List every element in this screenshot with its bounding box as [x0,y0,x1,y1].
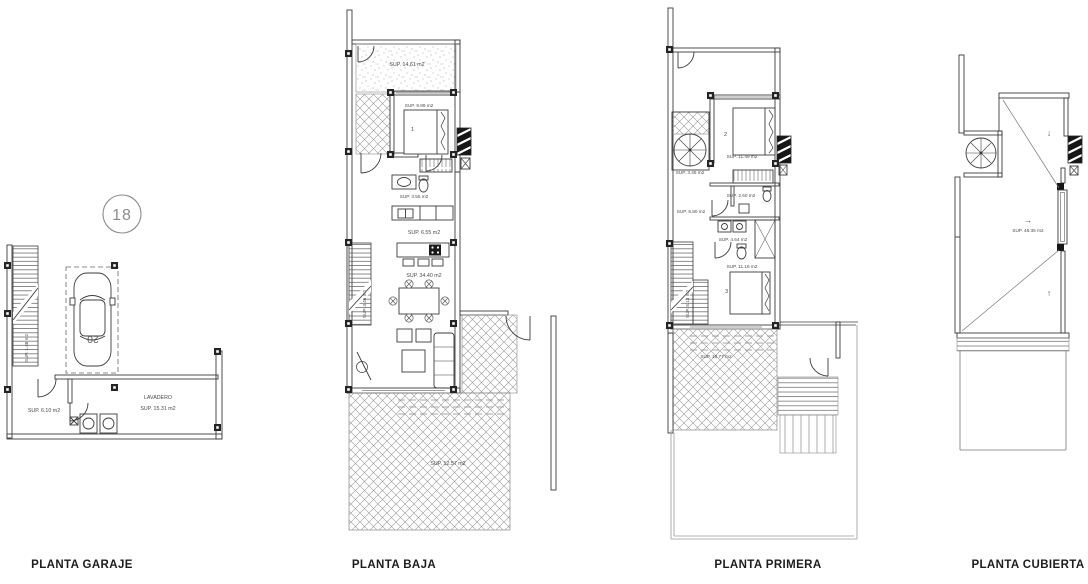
rear-terrace: SUP. 12.57 m2 [349,393,510,530]
car-number: 20 [87,333,99,345]
first-floor-plan-drawing: 2 SUP. 11.49 m2 SUP. 3.45 m2 [650,0,880,545]
spiral-stairs: SUP. 3.45 m2 [672,112,709,175]
garage-plan-drawing: 18 SUP. 1.48 m2 20 [0,180,235,465]
living-furniture [397,329,454,388]
title-planta-baja: PLANTA BAJA [319,559,469,571]
side-deck-hatch [356,94,390,154]
title-planta-primera: PLANTA PRIMERA [693,559,843,571]
ground-stairs: SUP. 3.46 m2 [349,243,371,325]
first-stairs-area-label: SUP. 5.13 m2 [685,290,690,318]
patio-area-label: SUP. 14.61 m2 [389,62,424,68]
bedroom-1-number: 1 [411,127,414,133]
roof-plan-drawing: ↓ → SUP. 46.35 m2 ↑ [930,40,1088,465]
laundry-area-label: SUP. 15.31 m2 [140,406,175,412]
bed-icon [733,108,775,155]
upper-terrace [671,48,780,95]
wardrobe [733,170,773,183]
bathroom-first-area-label: SUP. 4.64 m2 [719,237,748,242]
roof-lower-boundary [960,351,1066,450]
roof-area-label: SUP. 46.35 m2 [1012,228,1044,233]
bathroom-small: SUP. 2.60 m2 [710,183,779,213]
garage-stairs-area-label: SUP. 1.48 m2 [24,334,29,362]
terrace-area-label: SUP. 12.57 m2 [430,461,465,467]
meter-box-icon [461,158,470,169]
bedroom-2: 2 SUP. 11.49 m2 [710,95,780,163]
left-wall [347,10,352,393]
left-wall-top [668,8,673,48]
bed-icon [730,272,770,314]
ground-stairs-area-label: SUP. 3.46 m2 [362,290,367,318]
patio: SUP. 14.61 m2 [352,40,460,92]
first-stairs: SUP. 5.13 m2 [671,242,708,324]
slope-arrow-up: ↑ [1047,288,1051,298]
pergola [778,322,858,453]
first-terrace: SUP. 18.77 m2 [668,329,777,433]
hall-doors [712,200,731,258]
bedroom-1-area-label: SUP. 9.89 m2 [405,103,434,108]
right-wall [455,172,460,393]
car-icon: 20 [70,273,115,366]
bedroom-2-number: 2 [724,132,727,138]
bathroom-ground: SUP. 3.55 m2 [392,159,452,199]
slope-arrow-down: ↓ [1047,128,1051,138]
bathroom-small-area-label: SUP. 2.60 m2 [727,193,756,198]
plot-number-badge: 18 [103,195,141,233]
left-wall-top [959,55,964,133]
laundry-name-label: LAVADERO [144,395,172,401]
washer-icons [70,414,117,433]
solar-panel-icon [777,136,791,163]
kitchen-area-label: SUP. 6.55 m2 [408,230,440,236]
living-area-label: SUP. 34.40 m2 [406,273,441,279]
plot-number: 18 [112,207,132,224]
ground-floor-plan-drawing: SUP. 14.61 m2 SUP. 9.89 m2 1 [330,0,560,545]
bathroom-ground-area-label: SUP. 3.55 m2 [400,194,429,199]
kitchen: SUP. 6.55 m2 [392,206,453,266]
bedroom-2-area-label: SUP. 11.49 m2 [727,154,758,159]
stove-icon [429,245,441,256]
roof-spiral-stairs [964,131,1002,177]
spiral-stairs-area-label: SUP. 3.45 m2 [676,170,705,175]
roof-outline [957,93,1069,338]
title-planta-cubierta: PLANTA CUBIERTA [953,559,1088,571]
floor-plan-sheet: 18 SUP. 1.48 m2 20 [0,0,1088,584]
slope-arrow-right: → [1024,215,1033,225]
roof-slats [957,338,1069,351]
laundry-room: SUP. 6.10 m2 LAVADERO SUP. 15.31 m2 [7,351,222,439]
hall-area-label: SUP. 6.10 m2 [28,408,60,414]
left-boundary-wall [955,177,960,333]
bedroom-3-area-label: SUP. 11.16 m2 [727,264,758,269]
solar-panel-icon [457,128,471,155]
bedroom-3-number: 3 [725,289,728,295]
dining-table [389,280,449,322]
hall-area-label: SUP. 5.80 m2 [677,209,706,214]
roof-solar-panel-icon [1068,136,1082,163]
roof-meter-box-icon [1070,166,1078,175]
first-terrace-area-label: SUP. 18.77 m2 [700,354,732,359]
bathroom-first: SUP. 4.64 m2 [710,217,779,259]
title-planta-garaje: PLANTA GARAJE [7,559,157,571]
